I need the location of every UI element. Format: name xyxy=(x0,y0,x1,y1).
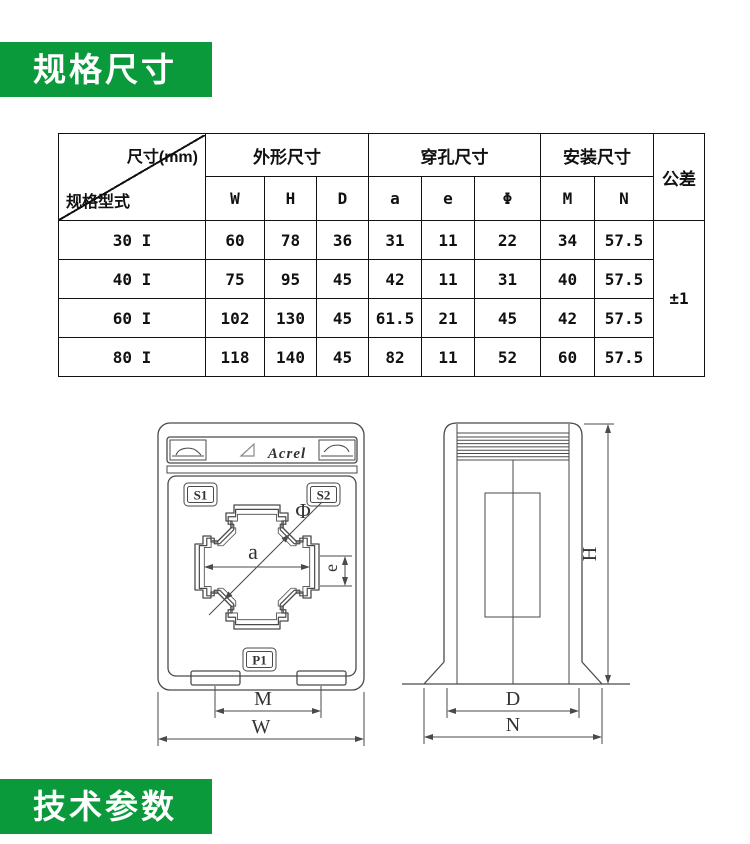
cell-value: 61.5 xyxy=(369,299,422,338)
dim-H: H xyxy=(579,424,614,684)
cell-model: 40 I xyxy=(59,260,206,299)
col-D: D xyxy=(317,177,369,221)
cell-value: 102 xyxy=(206,299,265,338)
col-H: H xyxy=(265,177,317,221)
cell-value: 42 xyxy=(369,260,422,299)
s2-label: S2 xyxy=(317,488,331,503)
section-banner-specs: 规格尺寸 xyxy=(0,42,212,97)
cell-value: 140 xyxy=(265,338,317,377)
front-foot-left xyxy=(191,671,240,685)
dimension-table: 尺寸(mm) 规格型式 外形尺寸 穿孔尺寸 安装尺寸 公差 W H D a e … xyxy=(58,133,705,377)
cell-value: 45 xyxy=(317,299,369,338)
table-row: 40 I 75 95 45 42 11 31 40 57.5 xyxy=(59,260,705,299)
corner-model-label: 规格型式 xyxy=(66,188,130,212)
section-title: 规格尺寸 xyxy=(33,51,177,88)
dim-h-label: H xyxy=(579,547,601,561)
cell-value: 57.5 xyxy=(595,299,654,338)
ribbed-strip xyxy=(457,433,569,460)
p1-tag: P1 xyxy=(243,648,276,671)
cell-value: 57.5 xyxy=(595,260,654,299)
ct-dimension-drawing: Acrel S1 S2 P1 xyxy=(0,400,750,770)
cell-value: 31 xyxy=(475,260,541,299)
cell-value: 118 xyxy=(206,338,265,377)
front-foot-right xyxy=(297,671,346,685)
s2-tag: S2 xyxy=(307,483,340,506)
corner-unit-label: 尺寸(mm) xyxy=(127,143,198,167)
spec-page: 规格尺寸 尺寸(mm) 规格型式 外形尺寸 穿孔尺寸 安装尺寸 公差 W H D xyxy=(0,0,750,844)
group-mount-dims: 安装尺寸 xyxy=(541,134,654,177)
dim-M: M xyxy=(215,686,321,718)
cell-value: 21 xyxy=(422,299,475,338)
corner-diagonal: 尺寸(mm) 规格型式 xyxy=(59,135,205,220)
p1-label: P1 xyxy=(252,653,266,668)
group-outline-dims: 外形尺寸 xyxy=(206,134,369,177)
cell-value: 45 xyxy=(317,260,369,299)
cell-value: 57.5 xyxy=(595,338,654,377)
group-hole-dims: 穿孔尺寸 xyxy=(369,134,541,177)
cell-value: 11 xyxy=(422,260,475,299)
cell-value: 22 xyxy=(475,221,541,260)
dim-phi-label: Φ xyxy=(295,499,310,523)
cell-value: 11 xyxy=(422,221,475,260)
cell-value: 60 xyxy=(541,338,595,377)
cell-model: 60 I xyxy=(59,299,206,338)
cell-value: 130 xyxy=(265,299,317,338)
section-banner-tech: 技术参数 xyxy=(0,779,212,834)
cell-model: 30 I xyxy=(59,221,206,260)
cell-value: 60 xyxy=(206,221,265,260)
terminal-screw-left xyxy=(170,440,206,460)
col-W: W xyxy=(206,177,265,221)
s1-label: S1 xyxy=(194,488,208,503)
cell-value: 11 xyxy=(422,338,475,377)
col-N: N xyxy=(595,177,654,221)
side-view: H D N xyxy=(402,423,630,744)
cell-value: 52 xyxy=(475,338,541,377)
cell-value: 36 xyxy=(317,221,369,260)
cell-value: 75 xyxy=(206,260,265,299)
s1-tag: S1 xyxy=(184,483,217,506)
dim-m-label: M xyxy=(254,688,272,710)
section-title: 技术参数 xyxy=(33,788,177,825)
col-M: M xyxy=(541,177,595,221)
table-row: 30 I 60 78 36 31 11 22 34 57.5 ±1 xyxy=(59,221,705,260)
cell-value: 57.5 xyxy=(595,221,654,260)
side-foot-right xyxy=(582,662,602,684)
tolerance-value: ±1 xyxy=(654,221,705,377)
dim-e: e xyxy=(320,556,352,586)
col-phi: Φ xyxy=(475,177,541,221)
cell-value: 42 xyxy=(541,299,595,338)
dim-e-label: e xyxy=(321,564,341,572)
brand-text: Acrel xyxy=(267,446,306,462)
table-row: 60 I 102 130 45 61.5 21 45 42 57.5 xyxy=(59,299,705,338)
side-foot-left xyxy=(424,662,444,684)
corner-cell: 尺寸(mm) 规格型式 xyxy=(59,134,206,221)
cell-value: 82 xyxy=(369,338,422,377)
cell-model: 80 I xyxy=(59,338,206,377)
cell-value: 40 xyxy=(541,260,595,299)
dim-n-label: N xyxy=(506,714,520,736)
cell-value: 45 xyxy=(317,338,369,377)
col-a: a xyxy=(369,177,422,221)
cell-value: 31 xyxy=(369,221,422,260)
front-view: Acrel S1 S2 P1 xyxy=(158,423,364,746)
table-row: 80 I 118 140 45 82 11 52 60 57.5 xyxy=(59,338,705,377)
cell-value: 95 xyxy=(265,260,317,299)
dim-d-label: D xyxy=(506,688,520,710)
cell-value: 34 xyxy=(541,221,595,260)
cell-value: 45 xyxy=(475,299,541,338)
terminal-screw-right xyxy=(319,440,355,460)
acrel-logo: Acrel xyxy=(241,444,306,462)
tolerance-header: 公差 xyxy=(654,134,705,221)
dim-w-label: W xyxy=(252,716,271,738)
dim-a-label: a xyxy=(248,539,258,564)
cell-value: 78 xyxy=(265,221,317,260)
col-e: e xyxy=(422,177,475,221)
